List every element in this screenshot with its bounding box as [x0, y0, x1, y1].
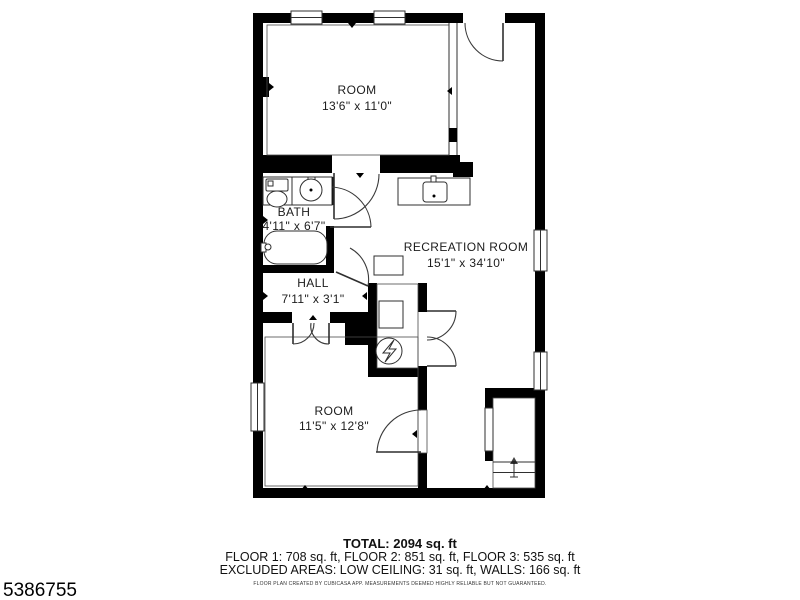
disclaimer-text: FLOOR PLAN CREATED BY CUBICASA APP. MEAS… — [253, 581, 546, 587]
room-label: ROOM — [315, 404, 354, 418]
stairs-up-icon — [493, 457, 535, 477]
total-area-text: TOTAL: 2094 sq. ft — [343, 536, 457, 551]
window-icon — [534, 230, 547, 271]
floor-plan-page: ROOM 13'6" x 11'0" BATH 4'11" x 6'7" REC… — [0, 0, 800, 600]
double-door-icon — [427, 311, 456, 366]
floor-areas-text: FLOOR 1: 708 sq. ft, FLOOR 2: 851 sq. ft… — [225, 550, 575, 564]
washer-icon — [379, 301, 403, 328]
cabinet — [374, 256, 403, 275]
window-icon — [374, 11, 405, 24]
room-label: BATH — [278, 205, 311, 219]
kitchenette — [398, 176, 470, 205]
floor-plan-drawing: ROOM 13'6" x 11'0" BATH 4'11" x 6'7" REC… — [0, 0, 800, 600]
door-frame — [418, 410, 427, 453]
utility-closet — [374, 256, 403, 364]
room-label: RECREATION ROOM — [404, 240, 528, 254]
room-label: HALL — [297, 276, 329, 290]
room-dimensions: 11'5" x 12'8" — [299, 419, 369, 433]
door-swing-icon — [465, 23, 503, 61]
room-dimensions: 7'11" x 3'1" — [281, 292, 344, 306]
double-door-icon — [293, 323, 329, 344]
area-summary: TOTAL: 2094 sq. ft FLOOR 1: 708 sq. ft, … — [220, 536, 581, 587]
window-icon — [251, 383, 264, 431]
door-swing-icon — [330, 187, 371, 227]
stairwell-half-wall — [485, 408, 493, 451]
window-icon — [291, 11, 322, 24]
bathtub-icon — [261, 231, 327, 264]
room-dimensions: 15'1" x 34'10" — [427, 256, 505, 270]
plan-id-number: 5386755 — [3, 580, 77, 600]
room-label: ROOM — [338, 83, 377, 97]
door-swing-icon — [376, 410, 421, 452]
window-icon — [534, 352, 547, 390]
room-dimensions: 13'6" x 11'0" — [322, 99, 392, 113]
water-heater-icon — [376, 338, 402, 364]
room-dimensions: 4'11" x 6'7" — [262, 219, 325, 233]
door-swing-icon — [336, 248, 369, 286]
excluded-areas-text: EXCLUDED AREAS: LOW CEILING: 31 sq. ft, … — [220, 563, 581, 577]
